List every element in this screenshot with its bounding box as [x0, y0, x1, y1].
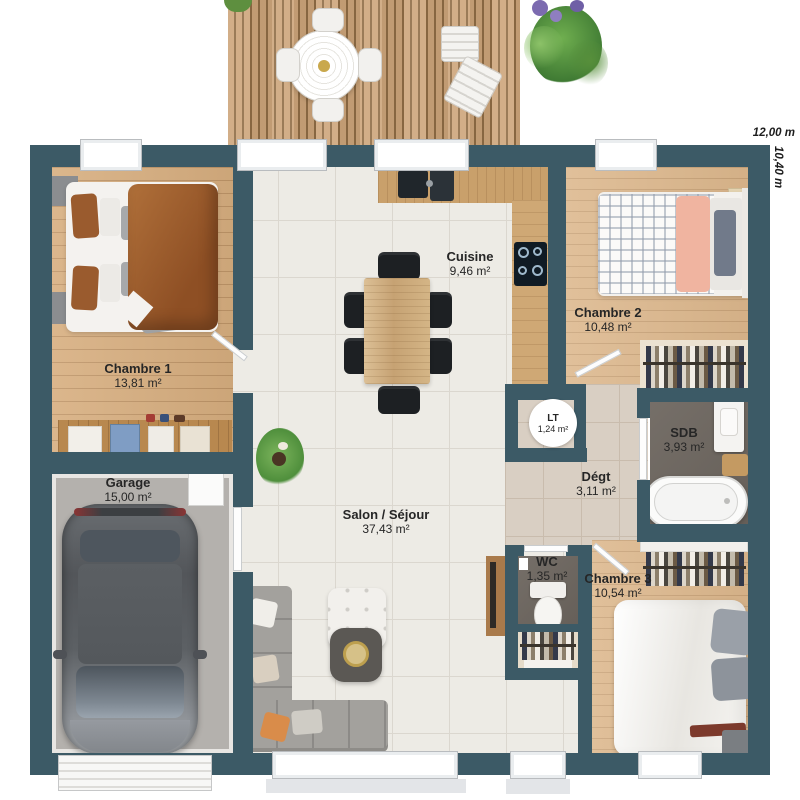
kitchen-sink-module — [430, 168, 454, 201]
plant-icon — [254, 426, 306, 492]
patio-table-center — [318, 60, 330, 72]
dining-chair — [378, 252, 420, 280]
room-label-lt: LT 1,24 m² — [529, 399, 577, 447]
closet-rail — [643, 566, 746, 569]
car-hood — [70, 720, 190, 752]
kitchen-sink — [398, 170, 428, 198]
kitchen-counter-right — [512, 200, 548, 390]
door-leaf-sdb — [639, 418, 647, 480]
patio-chair-south — [312, 98, 344, 122]
pillow — [70, 193, 99, 239]
wall-interior — [233, 167, 253, 350]
entry-step — [506, 779, 570, 794]
wall-interior — [233, 572, 253, 753]
drain-icon — [724, 498, 730, 504]
wall-interior — [637, 388, 748, 402]
room-name: Cuisine — [447, 250, 494, 264]
room-area: 1,35 m² — [527, 569, 568, 583]
room-area: 13,81 m² — [114, 376, 161, 390]
wall-interior — [233, 393, 253, 507]
entry-door — [510, 751, 566, 779]
room-label-degt: Dégt 3,11 m² — [576, 470, 616, 498]
room-label-chambre2: Chambre 2 10,48 m² — [574, 306, 641, 334]
dresser-item — [146, 414, 155, 422]
window-chambre3 — [638, 751, 702, 779]
burner-icon — [532, 265, 543, 276]
terrace-door — [237, 139, 327, 171]
large-plant-icon — [524, 0, 608, 96]
room-area: 3,93 m² — [664, 440, 705, 454]
car-windshield — [76, 666, 184, 718]
door-leaf-garage — [233, 507, 242, 571]
plant-flower — [532, 0, 548, 16]
plant-flower — [278, 442, 288, 450]
room-label-chambre1: Chambre 1 13,81 m² — [104, 362, 171, 390]
car-mirror — [193, 650, 207, 659]
dresser-item — [160, 414, 169, 422]
burner-icon — [518, 247, 529, 258]
sofa-pillow — [250, 654, 280, 684]
blanket-pink — [676, 196, 710, 292]
faucet-icon — [426, 180, 433, 187]
gold-tray — [343, 641, 369, 667]
car-taillights — [74, 508, 186, 516]
tv-icon — [490, 562, 496, 628]
room-area: 37,43 m² — [362, 522, 409, 536]
room-name: SDB — [670, 426, 697, 440]
wall-interior — [637, 388, 650, 418]
cooktop — [514, 242, 547, 286]
dresser-box — [148, 426, 174, 454]
dimension-height: 10,40 m — [772, 146, 784, 226]
vanity-sink — [720, 408, 738, 436]
patio-chair-east — [358, 48, 382, 82]
plant-flower — [550, 10, 562, 22]
car-rear-window — [80, 530, 180, 562]
patio-chair-west — [276, 48, 300, 82]
floor-plan-canvas: { "plan": { "dim_width": "12,00 m", "dim… — [0, 0, 800, 800]
car-roof — [78, 564, 182, 664]
wall-interior — [637, 524, 748, 542]
closet-clothes — [646, 346, 744, 388]
room-area: 3,11 m² — [576, 484, 616, 498]
room-name: Chambre 3 — [584, 572, 651, 586]
wall-exterior-right — [748, 145, 770, 775]
dining-chair — [378, 386, 420, 414]
wall-exterior-left — [30, 145, 52, 775]
room-name: Garage — [106, 476, 151, 490]
car-mirror — [53, 650, 67, 659]
wall-interior — [505, 448, 587, 462]
bath-stool — [722, 454, 748, 476]
burner-icon — [533, 247, 542, 256]
room-name: Chambre 1 — [104, 362, 171, 376]
wall-interior — [637, 480, 650, 528]
pillow — [100, 198, 120, 236]
sofa-pillow — [291, 709, 323, 736]
closet-clothes — [646, 552, 744, 586]
room-area: 10,48 m² — [584, 320, 631, 334]
room-area: 1,24 m² — [538, 424, 569, 434]
room-label-chambre3: Chambre 3 10,54 m² — [584, 572, 651, 600]
room-label-salon: Salon / Séjour 37,43 m² — [343, 508, 430, 536]
room-area: 15,00 m² — [104, 490, 151, 504]
room-label-wc: WC 1,35 m² — [527, 555, 568, 583]
dresser-box — [68, 426, 102, 454]
room-label-garage: Garage 15,00 m² — [104, 476, 151, 504]
bay-window-salon — [272, 751, 458, 779]
dresser-box — [180, 426, 210, 454]
pillow — [100, 264, 120, 302]
wall-interior — [52, 452, 233, 474]
crate-chair-1 — [441, 26, 479, 62]
wall-interior — [505, 668, 592, 680]
plant-foliage — [568, 40, 608, 86]
dining-table — [364, 278, 430, 384]
window-chambre2 — [595, 139, 657, 171]
plant-foliage — [524, 26, 564, 70]
window-kitchen — [374, 139, 469, 171]
porch-sill — [266, 779, 466, 793]
room-area: 9,46 m² — [450, 264, 491, 278]
car — [62, 500, 198, 758]
wall-interior — [518, 624, 578, 632]
room-label-cuisine: Cuisine 9,46 m² — [447, 250, 494, 278]
wall-interior — [505, 545, 524, 556]
wall-interior — [505, 545, 518, 676]
closet-rail — [643, 362, 746, 365]
room-label-sdb: SDB 3,93 m² — [664, 426, 705, 454]
room-name: WC — [536, 555, 558, 569]
door-leaf-wc — [524, 545, 568, 552]
patio-chair-north — [312, 8, 344, 32]
garage-door — [58, 755, 212, 791]
burner-icon — [518, 266, 527, 275]
closet-shelf — [524, 660, 572, 668]
room-name: Chambre 2 — [574, 306, 641, 320]
window-chambre1 — [80, 139, 142, 171]
closet-rail — [520, 644, 576, 647]
plant-pot — [272, 452, 286, 466]
room-name: Salon / Séjour — [343, 508, 430, 522]
pillow — [71, 265, 99, 310]
wall-interior — [548, 167, 566, 396]
pillow-patterned — [714, 210, 736, 276]
dimension-width: 12,00 m — [700, 127, 795, 139]
plant-flower — [570, 0, 584, 12]
dresser-item — [174, 415, 185, 422]
room-name: Dégt — [582, 470, 611, 484]
room-name: LT — [547, 413, 558, 424]
room-area: 10,54 m² — [594, 586, 641, 600]
